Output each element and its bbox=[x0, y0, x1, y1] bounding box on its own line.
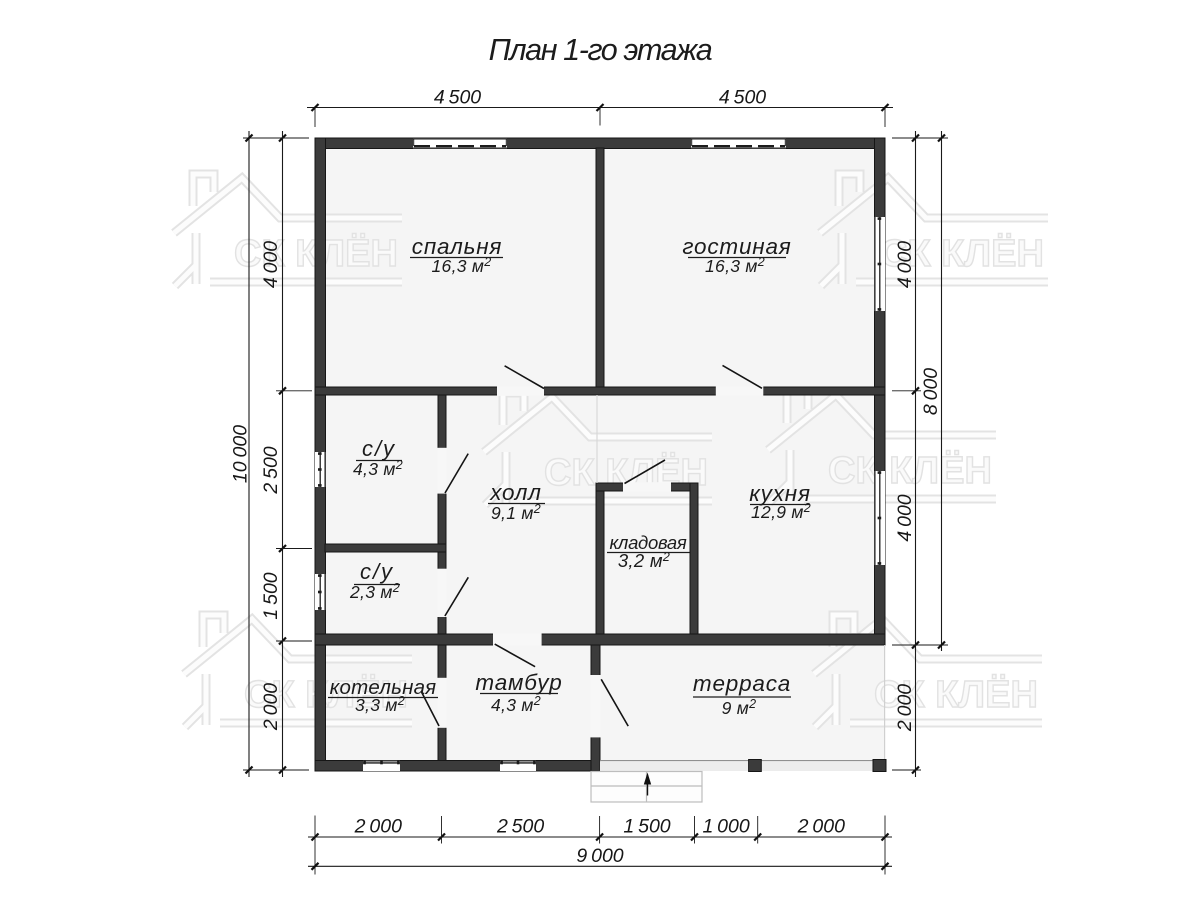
svg-text:4,3 м2: 4,3 м2 bbox=[353, 458, 403, 479]
svg-text:2 000: 2 000 bbox=[894, 684, 916, 732]
svg-text:1 000: 1 000 bbox=[702, 816, 749, 838]
svg-text:2 000: 2 000 bbox=[797, 816, 845, 838]
svg-text:9,1 м2: 9,1 м2 bbox=[491, 502, 541, 523]
svg-text:8 000: 8 000 bbox=[920, 368, 942, 415]
svg-text:4,3 м2: 4,3 м2 bbox=[491, 694, 541, 715]
svg-text:2,3 м2: 2,3 м2 bbox=[349, 581, 400, 602]
svg-text:1 500: 1 500 bbox=[623, 816, 670, 838]
svg-text:12,9 м2: 12,9 м2 bbox=[751, 501, 811, 522]
svg-text:2 500: 2 500 bbox=[496, 816, 544, 838]
svg-text:16,3 м2: 16,3 м2 bbox=[705, 255, 765, 276]
svg-text:2 000: 2 000 bbox=[354, 816, 402, 838]
svg-text:План 1-го этажа: План 1-го этажа bbox=[489, 33, 712, 67]
svg-text:терраса: терраса bbox=[693, 671, 791, 696]
svg-text:4 500: 4 500 bbox=[434, 87, 481, 109]
svg-text:тамбур: тамбур bbox=[475, 670, 562, 695]
svg-text:16,3 м2: 16,3 м2 bbox=[432, 255, 492, 276]
svg-text:3,2 м2: 3,2 м2 bbox=[618, 550, 670, 571]
svg-text:10 000: 10 000 bbox=[230, 425, 252, 483]
svg-text:2 500: 2 500 bbox=[260, 446, 282, 494]
svg-text:4 000: 4 000 bbox=[260, 241, 282, 288]
svg-text:9 000: 9 000 bbox=[576, 845, 623, 867]
svg-text:4 000: 4 000 bbox=[894, 241, 916, 288]
svg-text:2 000: 2 000 bbox=[260, 683, 282, 731]
svg-text:4 500: 4 500 bbox=[719, 87, 766, 109]
svg-text:с/у: с/у bbox=[360, 559, 394, 584]
svg-text:с/у: с/у bbox=[362, 436, 396, 461]
svg-text:3,3 м2: 3,3 м2 bbox=[355, 694, 405, 715]
svg-text:4 000: 4 000 bbox=[894, 494, 916, 541]
svg-text:1 500: 1 500 bbox=[260, 572, 282, 619]
